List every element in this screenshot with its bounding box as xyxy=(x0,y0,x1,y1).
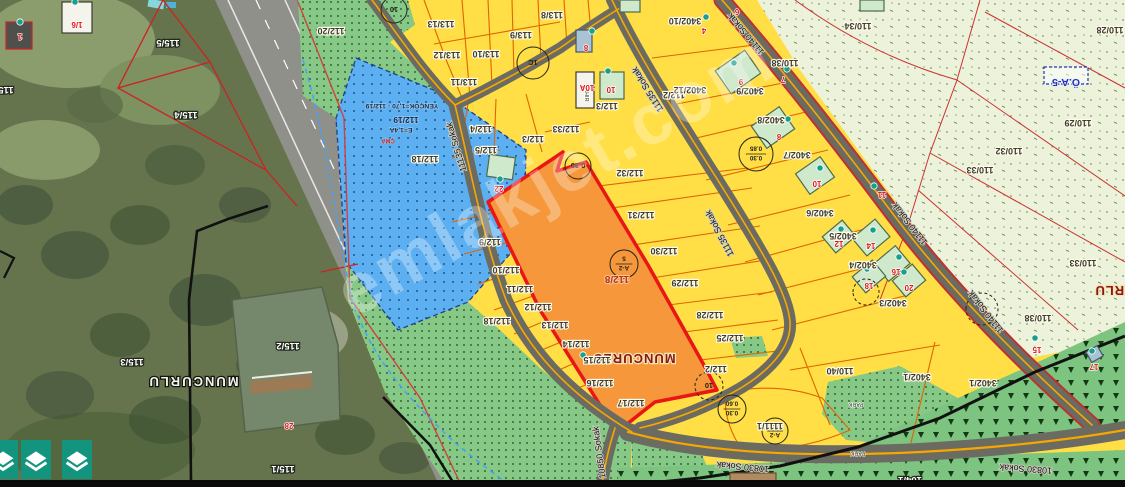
layers-button[interactable] xyxy=(0,440,18,479)
parcel-label: 112/28 xyxy=(696,310,723,320)
svg-text:A-2: A-2 xyxy=(618,264,629,271)
svg-text:10: 10 xyxy=(390,5,398,14)
parcel-label: 112/4 xyxy=(470,124,492,134)
parcel-label: 113/8 xyxy=(541,10,563,20)
layers-icon xyxy=(64,446,90,474)
parcel-label: 112/2 xyxy=(705,364,727,374)
parcel-label: 3402/7 xyxy=(783,150,811,160)
building-number: 1/6 xyxy=(71,20,83,29)
parcel-label: 112/15 xyxy=(583,355,610,365)
poi-marker xyxy=(1089,348,1095,354)
map-canvas[interactable]: 1C100.300.300.85A-25A-250.300.6010 115/5… xyxy=(0,0,1125,487)
parcel-label: 3402/9 xyxy=(736,86,764,96)
parcel-label: 112/12 xyxy=(524,302,551,312)
building-number: 17 xyxy=(1089,362,1098,371)
building-number: 11 xyxy=(877,190,886,199)
parcel-label: 112/31 xyxy=(627,210,654,220)
parcel-label: 113/11 xyxy=(451,77,478,87)
svg-text:0.85: 0.85 xyxy=(749,145,762,152)
parcel-label: 112/11 xyxy=(507,284,534,294)
parcel-label: 112/14 xyxy=(562,339,589,349)
poi-marker xyxy=(17,19,23,25)
parcel-label: 112/16 xyxy=(586,378,613,388)
parcel-label: 112/29 xyxy=(671,278,698,288)
layers-icon xyxy=(0,446,16,474)
parcel-label: 112/32 xyxy=(616,168,643,178)
poi-marker xyxy=(901,269,907,275)
building-number: 7 xyxy=(780,75,785,84)
svg-text:1C: 1C xyxy=(528,58,538,67)
parcel-label: 115/3 xyxy=(120,356,143,367)
svg-text:5: 5 xyxy=(622,255,626,262)
building-number: 10 xyxy=(606,85,615,94)
svg-text:0.30: 0.30 xyxy=(725,409,738,416)
poi-marker xyxy=(896,254,902,260)
poi-marker xyxy=(497,176,503,182)
parcel-label: 115/5 xyxy=(0,84,14,95)
parcel-label: 112/18 xyxy=(483,316,510,326)
parcel-label: 3402/1 xyxy=(903,372,931,382)
parcel-label: 110/28 xyxy=(1096,25,1123,35)
building-number: 6 xyxy=(734,7,739,16)
parcel-label: 113/10 xyxy=(472,49,499,59)
zoning-label: Ö.A-5 xyxy=(1052,76,1080,89)
svg-text:10: 10 xyxy=(705,381,713,390)
parcel-label: 112/18 xyxy=(411,154,438,164)
parcel-label: 112/17 xyxy=(617,398,644,408)
building-number: 1 xyxy=(17,32,22,41)
building-number: 12 xyxy=(834,239,843,248)
bottom-bar xyxy=(0,480,1125,487)
parcel-label: E=1,4A xyxy=(389,126,412,133)
poi-marker xyxy=(1032,335,1038,341)
parcel-label: 113/13 xyxy=(427,19,454,29)
parcel-label: 110/33 xyxy=(966,165,993,175)
parcel-label: 112/33 xyxy=(552,124,579,134)
parcel-label: 110/40 xyxy=(826,366,853,376)
parcel-label: 112/13 xyxy=(541,320,568,330)
svg-text:A-2: A-2 xyxy=(769,431,780,438)
parcel-label: 1111/1 xyxy=(757,421,783,431)
parcel-label: 3402/12 xyxy=(674,85,707,95)
parcel-label: PARK xyxy=(848,401,863,407)
place-label: MUNCURLU xyxy=(147,374,238,389)
parcel-label: ÇMA xyxy=(381,137,395,143)
building-number: 20 xyxy=(904,283,913,292)
parcel-label: 110/29 xyxy=(1064,118,1091,128)
building xyxy=(860,0,884,11)
parcel-label: 112/5 xyxy=(475,145,497,155)
building-number: 9 xyxy=(738,77,743,86)
layers-button[interactable] xyxy=(62,440,92,479)
parcel-label: 3402/4 xyxy=(849,260,877,270)
parcel-label: PARK xyxy=(850,450,865,456)
building-number: 22 xyxy=(494,184,503,193)
poi-marker xyxy=(785,116,791,122)
parcel-label: 112/30 xyxy=(650,246,677,256)
poi-marker xyxy=(605,68,611,74)
parcel-label: 110/38 xyxy=(771,58,798,68)
building-number: 15 xyxy=(1032,345,1041,354)
building-number: 10 xyxy=(812,179,821,188)
poi-marker xyxy=(72,0,78,5)
parcel-label: 3402/6 xyxy=(806,208,834,218)
parcel-label: 112/19 xyxy=(393,115,419,125)
parcel-label: 112/10 xyxy=(492,265,519,275)
layers-icon xyxy=(23,446,49,474)
building-number: 4 xyxy=(701,26,706,35)
parcel-label: 110/33 xyxy=(1069,258,1096,268)
building xyxy=(620,0,640,12)
poi-marker xyxy=(871,183,877,189)
building-number: 16 xyxy=(891,267,900,276)
svg-text:0.30: 0.30 xyxy=(749,154,762,161)
parcel-label: 3402/10 xyxy=(669,16,702,26)
parcel-label: 112/25 xyxy=(716,333,743,343)
building-number: 10A xyxy=(579,83,594,92)
building-number: 14 xyxy=(866,241,875,250)
parcel-label: 115/5 xyxy=(156,37,180,48)
layers-button[interactable] xyxy=(21,440,51,479)
building-number: 8 xyxy=(776,132,781,141)
parcel-label: 112/3 xyxy=(596,101,618,111)
building-number: 8 xyxy=(583,43,588,52)
parcel-label: 115/4 xyxy=(174,109,198,120)
poi-marker xyxy=(703,14,709,20)
parcel-label: 112/8 xyxy=(604,273,629,284)
parcel-label: 110/38 xyxy=(1024,313,1051,323)
building-number: 28 xyxy=(284,421,293,430)
parcel-label: 3402/8 xyxy=(757,115,785,125)
parcel-label: 112/3 xyxy=(522,134,544,144)
poi-marker xyxy=(731,60,737,66)
poi-marker xyxy=(589,28,595,34)
parcel-label: 113/9 xyxy=(510,30,532,40)
parcel-label: 110/34 xyxy=(844,21,871,31)
building-number: 18 xyxy=(864,281,873,290)
pond xyxy=(232,287,340,432)
parcel-label: YENÇOK=1,70 - 112/19 xyxy=(365,102,438,109)
parcel-label: 110/32 xyxy=(995,146,1022,156)
parcel-label: 112/9 xyxy=(479,237,501,247)
parcel-label: 115/1 xyxy=(271,463,295,474)
poi-marker xyxy=(870,227,876,233)
svg-text:0.60: 0.60 xyxy=(725,400,738,407)
parcel-label: 3402/3 xyxy=(879,298,907,308)
parcel-label: 115/2 xyxy=(276,340,299,351)
svg-text:0.30: 0.30 xyxy=(571,161,586,170)
map-svg: 1C100.300.300.85A-25A-250.300.6010 115/5… xyxy=(0,0,1125,487)
place-label: MUNCURLU xyxy=(1094,283,1125,298)
parcel-label: 113/12 xyxy=(433,50,460,60)
parcel-label: 3402/1 xyxy=(969,378,997,388)
poi-marker xyxy=(817,165,823,171)
parcel-label: 112/20 xyxy=(317,26,344,36)
